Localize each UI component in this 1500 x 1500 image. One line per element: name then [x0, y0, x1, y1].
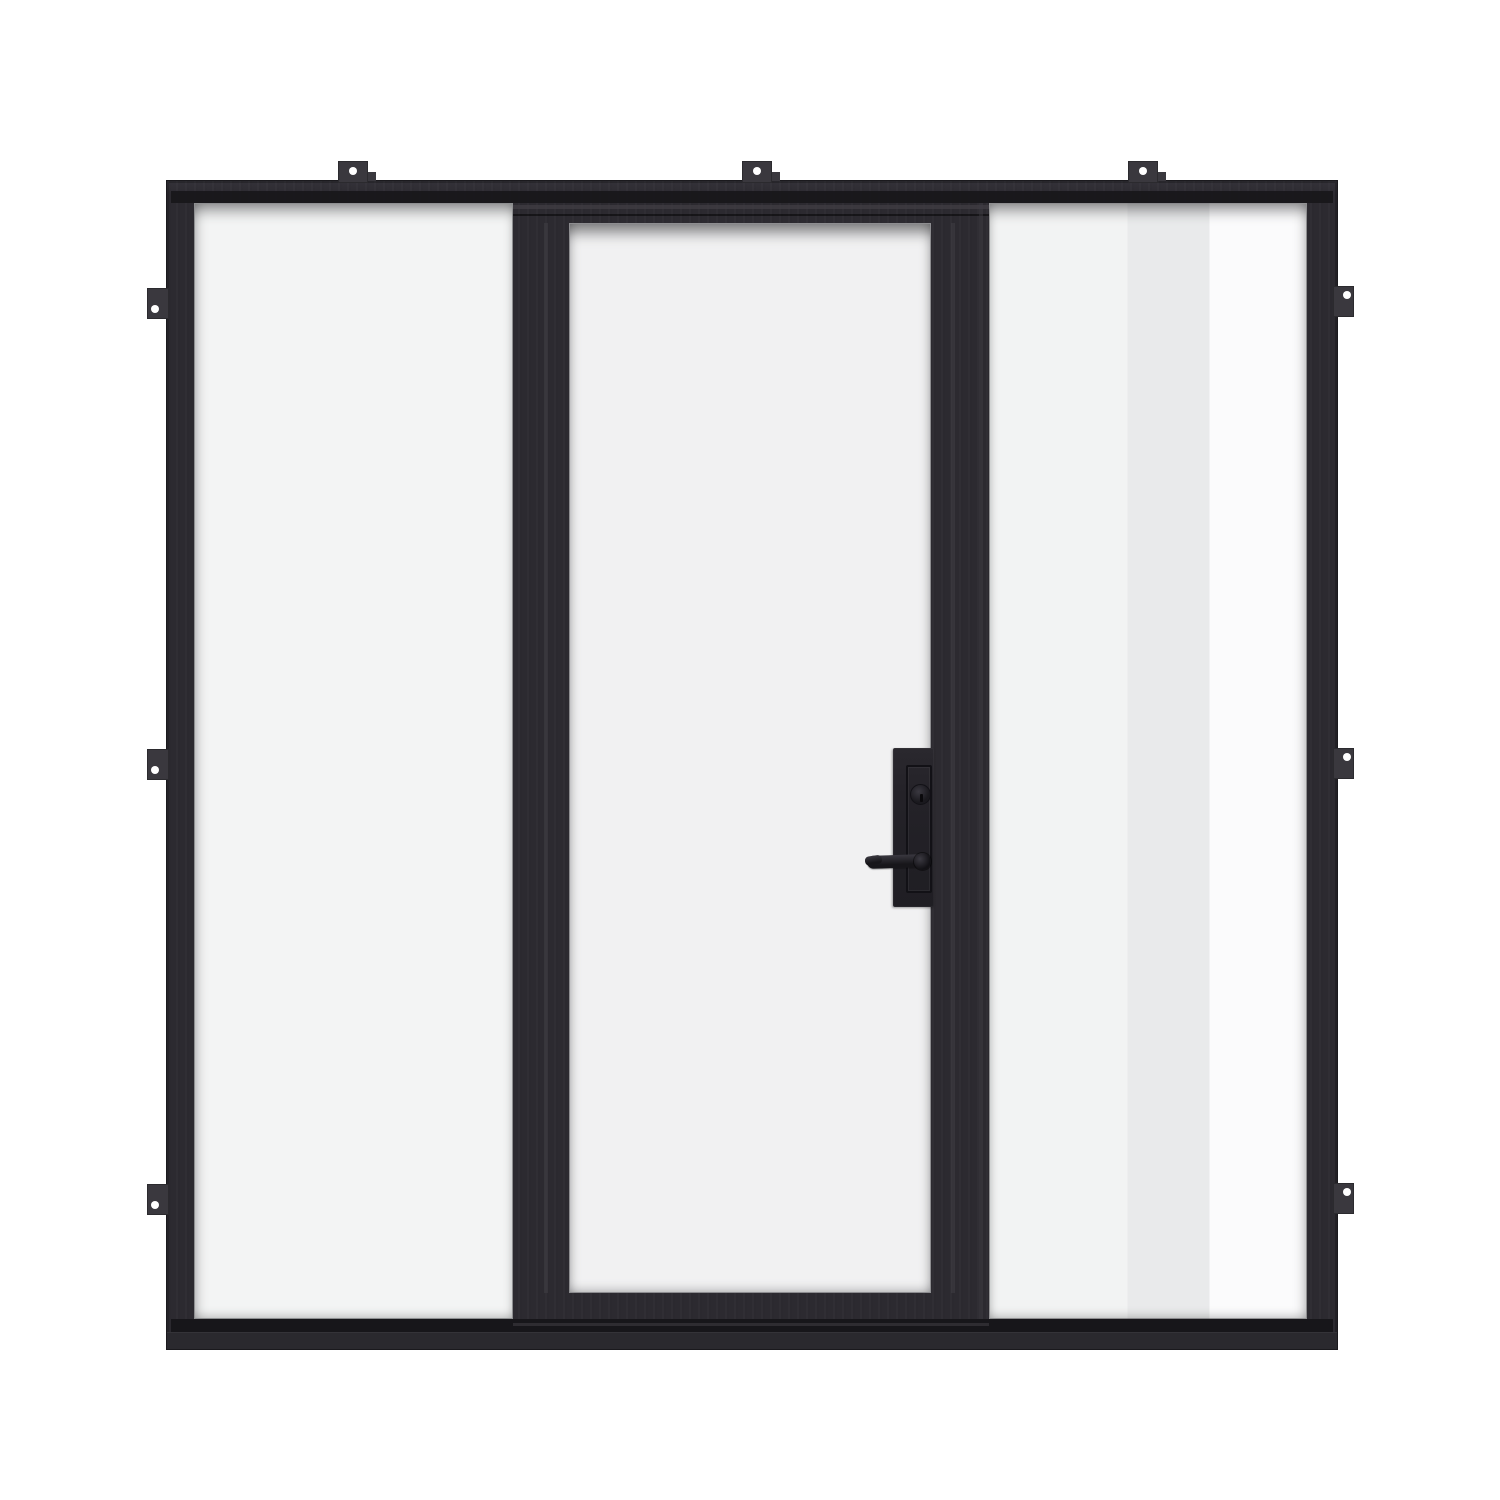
- mounting-tab-right-1: [1333, 286, 1354, 317]
- steel-door-unit: [166, 180, 1338, 1350]
- keyhole-slot-icon: [920, 794, 923, 802]
- right-sidelight-glass: [989, 203, 1307, 1319]
- screw-hole-icon: [349, 167, 357, 175]
- hinge-stile-seam: [544, 223, 548, 1293]
- lock-stile-seam: [951, 223, 955, 1293]
- screw-hole-icon: [1343, 291, 1351, 299]
- screw-hole-icon: [1343, 1188, 1351, 1196]
- screw-hole-icon: [151, 766, 159, 774]
- door-threshold-seam: [513, 1323, 989, 1326]
- mounting-tab-left-1: [147, 288, 169, 319]
- screw-hole-icon: [1343, 753, 1351, 761]
- screw-hole-icon: [1139, 167, 1147, 175]
- mounting-tab-top-3: [1128, 161, 1158, 183]
- screw-hole-icon: [151, 305, 159, 313]
- door-glass: [569, 223, 931, 1293]
- screw-hole-icon: [753, 167, 761, 175]
- mounting-tab-top-1: [338, 161, 368, 183]
- deadbolt-cylinder-icon: [910, 784, 931, 805]
- mounting-tab-top-2: [742, 161, 772, 183]
- handle-pivot: [914, 853, 931, 870]
- mounting-tab-left-3: [147, 1184, 169, 1215]
- door-top-rail-seam: [513, 205, 989, 209]
- frame-head-recess: [171, 191, 1333, 203]
- lock-jamb-seam: [979, 203, 983, 1319]
- screw-hole-icon: [151, 1201, 159, 1209]
- mounting-tab-left-2: [147, 749, 169, 780]
- left-sidelight-glass: [194, 203, 513, 1319]
- product-image: [0, 0, 1500, 1500]
- door-top-rail-shadow-line: [513, 214, 989, 216]
- mounting-tab-right-3: [1333, 1183, 1354, 1214]
- mounting-tab-right-2: [1333, 748, 1354, 779]
- lock-plate: [893, 748, 934, 907]
- sill-base: [167, 1332, 1337, 1349]
